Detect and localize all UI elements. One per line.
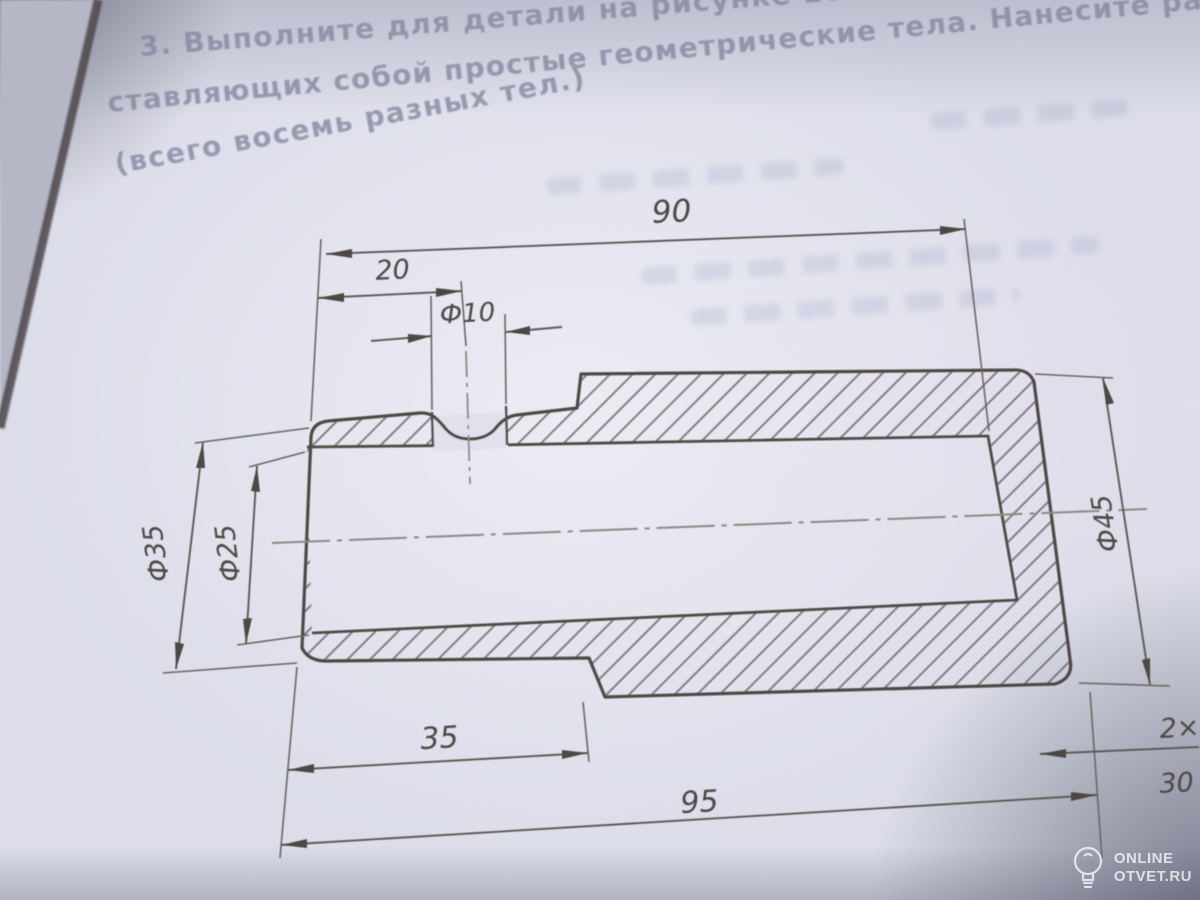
dim-small-outer-diameter: Ф35 xyxy=(137,523,176,584)
book-page-photo: 2. Выполните 3. Выполните для детали на … xyxy=(0,0,1200,900)
dimension-arrows xyxy=(175,226,1150,848)
bore-outline xyxy=(307,436,1017,633)
watermark-line1: ONLINE xyxy=(1114,850,1192,868)
technical-drawing: 90 20 Ф10 Ф35 Ф25 Ф45 35 95 2× 30 xyxy=(0,0,1200,900)
dim-chamfer-line1: 2× xyxy=(1159,712,1200,745)
dim-small-section-length: 35 xyxy=(419,720,459,757)
lightbulb-icon xyxy=(1069,844,1107,892)
dim-large-outer-diameter: Ф45 xyxy=(1086,492,1126,554)
page-edge xyxy=(0,0,98,428)
dim-top-length: 90 xyxy=(651,193,692,231)
watermark-line2: OTVET.RU xyxy=(1114,868,1192,886)
hole-void xyxy=(433,412,507,452)
dim-bore-diameter: Ф25 xyxy=(210,523,248,584)
drawing-content: 90 20 Ф10 Ф35 Ф25 Ф45 35 95 2× 30 xyxy=(137,193,1200,858)
section-hatching xyxy=(302,370,1071,697)
watermark: ONLINE OTVET.RU xyxy=(1069,844,1192,892)
dim-hole-diameter: Ф10 xyxy=(439,298,496,331)
dim-chamfer-line2: 30 xyxy=(1159,767,1195,800)
dim-hole-offset: 20 xyxy=(375,254,411,287)
dim-overall-length: 95 xyxy=(679,784,719,821)
